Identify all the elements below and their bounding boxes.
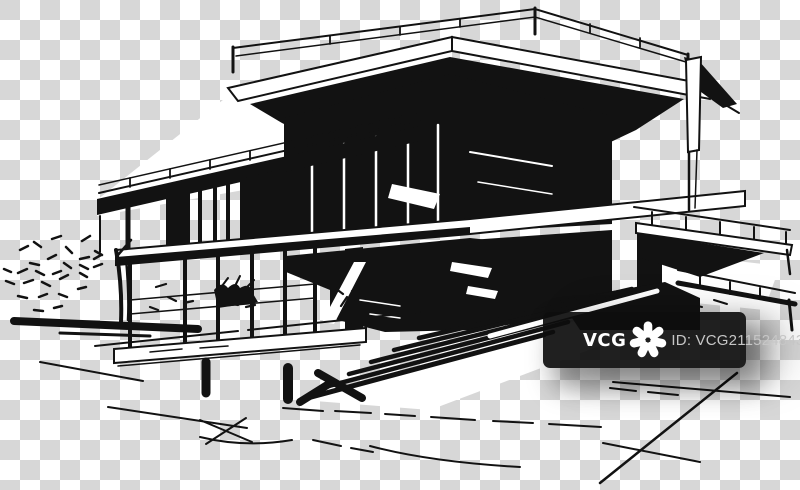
vcg-logo-text: VCG — [583, 330, 626, 351]
vcg-watermark: VCG ID: VCG211524843194 — [543, 312, 746, 368]
stock-image-canvas: VCG ID: VCG211524843194 — [0, 0, 800, 490]
plinth-group — [14, 321, 366, 399]
vcg-flower-icon — [627, 317, 669, 363]
architecture-sketch — [0, 0, 800, 490]
image-id-text: ID: VCG211524843194 — [671, 332, 800, 349]
